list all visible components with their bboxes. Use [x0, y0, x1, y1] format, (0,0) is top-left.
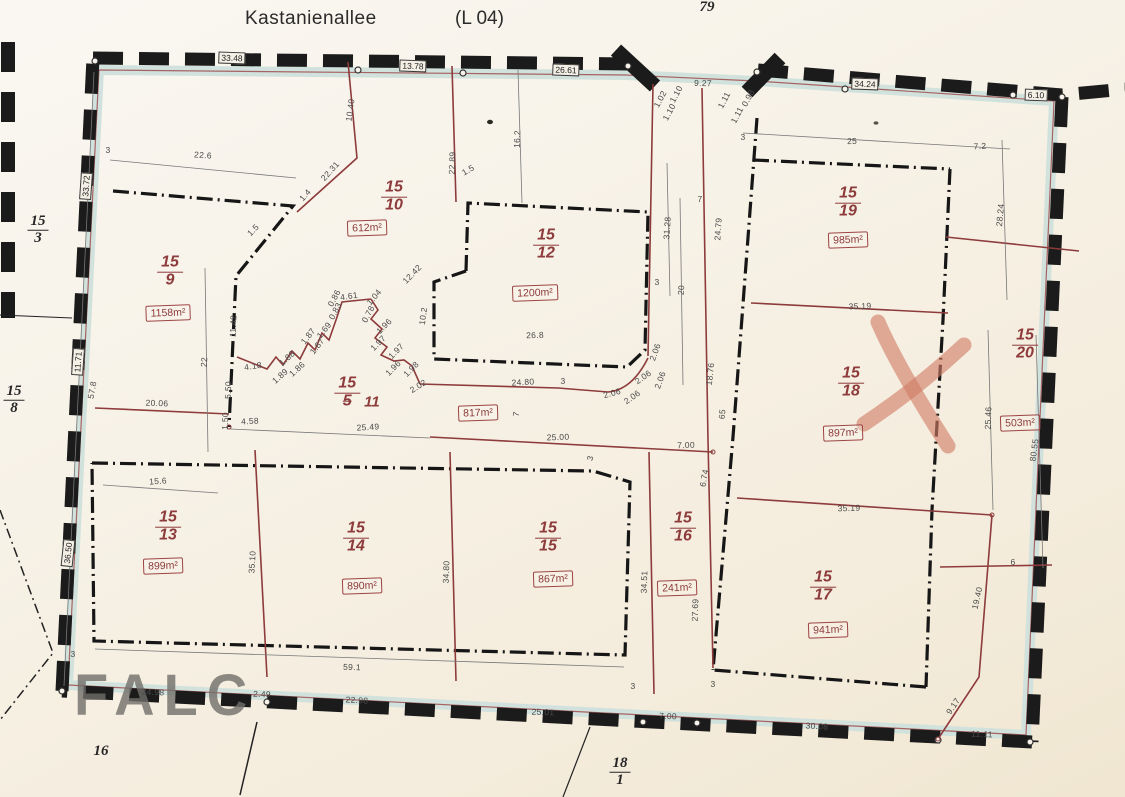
dimension-label: 3 [560, 376, 565, 386]
dimension-label: 1.5 [245, 222, 261, 238]
parcel-area-label: 867m² [533, 570, 573, 587]
dimension-label: 3 [585, 454, 596, 461]
border-measurement-label: 33.48 [218, 52, 246, 65]
neighbor-parcel-label: 79 [700, 0, 715, 16]
border-measurement-label: 13.78 [399, 60, 427, 73]
dimension-label: 26.8 [526, 330, 544, 341]
dimension-label: 3 [105, 145, 110, 155]
dimension-label: 18.76 [704, 362, 716, 386]
street-name-label: Kastanienallee [245, 8, 377, 30]
dimension-label: 57.8 [86, 380, 99, 399]
parcel-area-label: 985m² [828, 231, 868, 248]
dimension-label: 3 [740, 132, 745, 142]
dimension-label: 6 [1010, 557, 1015, 567]
dimension-label: 1.50 [220, 412, 231, 430]
dimension-label: 7 [697, 194, 702, 204]
dimension-label: 16.2 [512, 130, 523, 148]
dimension-label: 27.69 [690, 598, 701, 621]
dimension-label: 25.49 [356, 421, 379, 432]
border-measurement-label: 6.10 [1025, 89, 1048, 102]
dimension-label: 34.51 [639, 570, 650, 593]
dimension-label: 34.80 [441, 560, 452, 583]
border-measurement-label: 26.61 [552, 64, 580, 77]
dimension-label: 25.46 [983, 406, 994, 429]
dimension-label: 1.10 [660, 102, 677, 122]
dimension-label: 31.28 [661, 216, 673, 239]
dimension-label: 1.4 [297, 187, 313, 203]
neighbor-parcel-label: 16 [94, 744, 109, 760]
dimension-label: 20 [676, 285, 687, 296]
dimension-label: 3 [630, 681, 635, 691]
parcel-area-label: 1200m² [512, 284, 558, 302]
dimension-label: 25 [847, 136, 857, 146]
parcel-number-label: 159 [157, 255, 183, 290]
dimension-label: 12.42 [400, 262, 423, 285]
parcel-number-label: 1515 [535, 521, 561, 556]
dimension-label: 2.06 [602, 386, 622, 400]
dimension-label: 1.11 [716, 90, 733, 110]
dimension-label: 11.42 [228, 315, 239, 337]
parcel-number-label: 1510 [381, 180, 407, 215]
parcel-number-label: 1520 [1012, 328, 1038, 363]
dimension-label: 7.00 [659, 711, 677, 722]
dimension-label: 7 [511, 411, 522, 417]
border-measurement-label: 36.50 [61, 539, 76, 567]
dimension-label: 59.1 [343, 662, 361, 673]
dimension-label: 1.5 [460, 162, 476, 177]
border-measurement-label: 34.24 [851, 78, 879, 91]
dimension-label: 1.97 [368, 333, 388, 353]
dimension-label: 1.89 [270, 366, 290, 385]
dimension-label: 2.06 [647, 342, 662, 362]
dimension-label: 7.00 [677, 440, 695, 451]
parcel-area-label: 941m² [808, 621, 848, 638]
neighbor-parcel-label: 158 [4, 384, 25, 417]
dimension-label: 4.58 [241, 416, 259, 427]
neighbor-parcel-label: 181 [610, 756, 631, 789]
dimension-label: 10.2 [417, 307, 429, 326]
dimension-label: 1.11 [729, 105, 746, 125]
dimension-label: 2.02 [408, 377, 428, 395]
dimension-label: 35.10 [246, 550, 257, 573]
parcel-area-label: 817m² [458, 404, 498, 421]
parcel-number-label: 15511 [334, 376, 379, 411]
dimension-label: 30.08 [805, 720, 828, 731]
cadastral-site-plan: FALC Kastanienallee (L 04) 9.271.021.101… [0, 0, 1125, 797]
dimension-label: 65 [717, 408, 728, 419]
dimension-label: 0.98 [739, 88, 756, 108]
dimension-label: 1.96 [374, 316, 394, 336]
border-measurement-label: 11.71 [71, 348, 85, 375]
dimension-label: 22.6 [194, 149, 212, 160]
parcel-area-label: 899m² [143, 557, 183, 574]
dimension-label: 25.01 [531, 707, 554, 718]
dimension-label: 22.98 [345, 694, 368, 705]
dimension-label: 2.06 [633, 368, 653, 386]
dimension-label: 9.17 [944, 696, 962, 716]
dimension-label: 20.06 [145, 398, 168, 409]
dimension-label: 3 [654, 277, 659, 287]
road-ref-label: (L 04) [455, 8, 504, 30]
dimension-label: 35.19 [848, 301, 871, 312]
dimension-label: 9.27 [694, 78, 712, 89]
dimension-label: 1.98 [401, 359, 421, 379]
dimension-label: 6.74 [698, 468, 711, 487]
dimension-label: 3 [70, 649, 75, 659]
dimension-label: 2.49 [253, 689, 271, 700]
dimension-label: 28.24 [994, 203, 1006, 227]
parcel-area-label: 890m² [342, 577, 382, 594]
neighbor-parcel-label: 153 [28, 214, 49, 247]
dimension-label: 11.11 [971, 729, 993, 740]
parcel-number-label: 1518 [838, 366, 864, 401]
parcel-number-label: 1516 [670, 511, 696, 546]
parcel-area-label: 612m² [347, 219, 387, 236]
dimension-label: 0.78 [359, 304, 376, 324]
labels-layer: Kastanienallee (L 04) 9.271.021.101.101.… [0, 0, 1125, 797]
parcel-number-label: 1514 [343, 521, 369, 556]
dimension-label: 24.79 [712, 217, 724, 240]
dimension-label: 2.06 [622, 388, 642, 406]
dimension-label: 22.31 [319, 159, 342, 183]
dimension-label: 15.6 [149, 475, 167, 486]
dimension-label: 5.50 [223, 381, 234, 399]
dimension-label: 1.10 [667, 84, 684, 104]
dimension-label: 2.06 [652, 370, 667, 390]
dimension-label: 1.86 [287, 359, 307, 378]
dimension-label: 19.40 [970, 586, 985, 610]
dimension-label: 35.19 [837, 503, 860, 514]
parcel-number-label: 1513 [155, 510, 181, 545]
dimension-label: 25.00 [546, 432, 569, 443]
parcel-area-label: 241m² [657, 579, 697, 596]
parcel-area-label: 1158m² [145, 304, 190, 322]
dimension-label: 1.96 [383, 358, 403, 378]
dimension-label: 22 [199, 357, 210, 368]
parcel-area-label: 503m² [1000, 414, 1040, 431]
dimension-label: 24.80 [511, 376, 534, 387]
border-measurement-label: 33.72 [79, 172, 93, 200]
dimension-label: 4.61 [340, 290, 359, 302]
dimension-label: 10.40 [343, 98, 356, 122]
dimension-label: 24.98 [141, 687, 164, 698]
parcel-number-label: 1519 [835, 186, 861, 221]
parcel-number-label: 1517 [810, 570, 836, 605]
dimension-label: 3 [710, 679, 715, 689]
parcel-area-label: 897m² [823, 424, 863, 441]
dimension-label: 7.2 [973, 141, 986, 152]
dimension-label: 4.18 [244, 360, 263, 372]
parcel-number-label: 1512 [533, 228, 559, 263]
dimension-label: 80.55 [1027, 438, 1040, 462]
dimension-label: 22.89 [447, 151, 458, 174]
